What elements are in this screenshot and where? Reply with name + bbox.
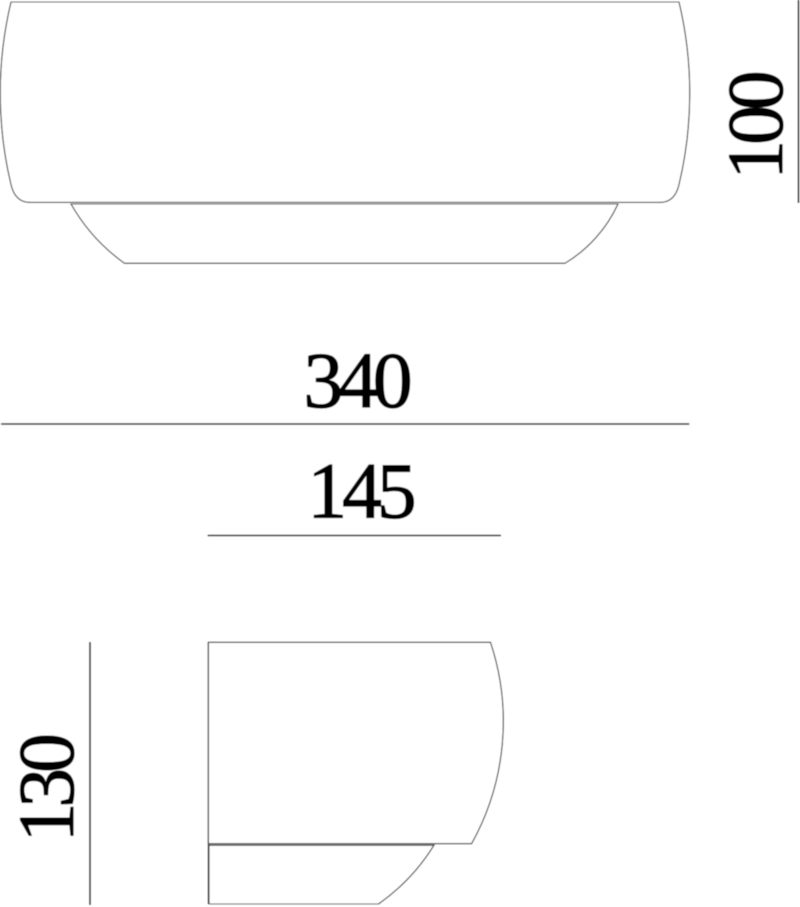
- svg-text:100: 100: [712, 73, 800, 180]
- svg-text:130: 130: [3, 736, 91, 843]
- svg-text:340: 340: [303, 337, 410, 425]
- svg-text:145: 145: [307, 448, 414, 536]
